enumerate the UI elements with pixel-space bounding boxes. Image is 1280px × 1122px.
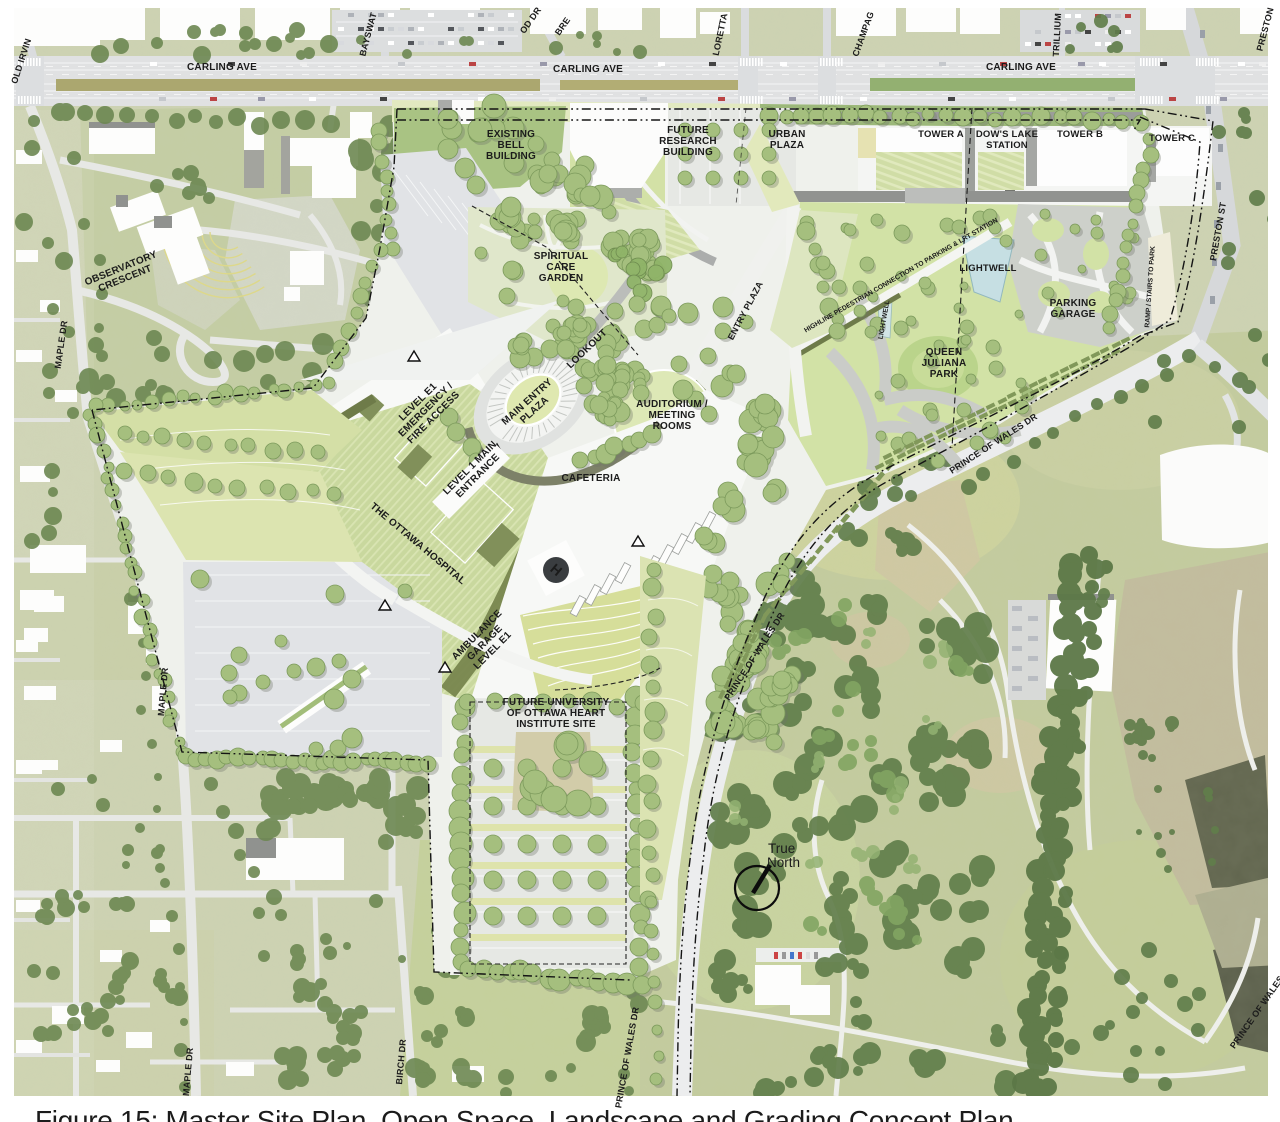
svg-text:FUTURERESEARCHBUILDING: FUTURERESEARCHBUILDING [659, 125, 717, 158]
svg-text:Figure 15: Master Site Plan, O: Figure 15: Master Site Plan, Open Space,… [35, 1105, 1013, 1122]
svg-text:True: True [768, 841, 795, 856]
svg-text:FUTURE UNIVERSITYOF OTTAWA HE: FUTURE UNIVERSITYOF OTTAWA HEARTINSTITUT… [503, 697, 610, 730]
svg-text:TOWER C: TOWER C [1149, 133, 1195, 144]
svg-text:CARLING AVE: CARLING AVE [986, 62, 1056, 73]
svg-text:LIGHTWELL: LIGHTWELL [959, 263, 1016, 274]
svg-text:TOWER B: TOWER B [1057, 129, 1103, 140]
svg-text:North: North [767, 855, 800, 870]
svg-text:CAFETERIA: CAFETERIA [561, 473, 620, 484]
svg-text:CARLING AVE: CARLING AVE [187, 62, 257, 73]
svg-text:CARLING AVE: CARLING AVE [553, 64, 623, 75]
svg-text:URBANPLAZA: URBANPLAZA [768, 129, 805, 151]
svg-text:PARKINGGARAGE: PARKINGGARAGE [1050, 298, 1097, 320]
svg-text:TOWER A: TOWER A [918, 129, 964, 140]
